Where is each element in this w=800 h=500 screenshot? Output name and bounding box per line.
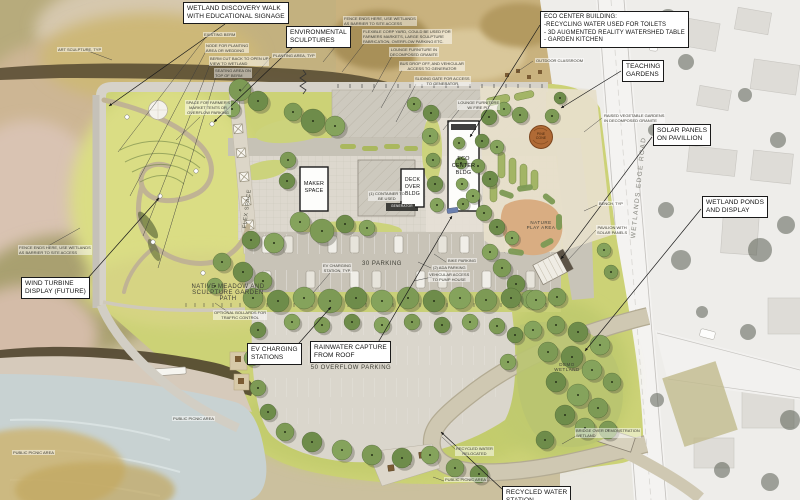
note-fence-ends-top: FENCE ENDS HERE, USE WETLANDS AS BARRIER… [343,16,417,26]
note-bridge-demo: BRIDGE OVER DEMONSTRATION WETLAND [575,428,641,438]
note-ada-parking: (2) ADA PARKING [432,265,467,270]
note-bike-parking: BIKE PARKING [447,258,477,263]
note-art-sculpture: ART SCULPTURE, TYP [57,47,102,52]
note-vehicular-access: VEHICULAR ACCESS TO PUMP HOUSE [428,272,470,282]
callout-solar-panels: SOLAR PANELS ON PAVILLION [653,124,711,146]
eco-center-bldg-label: ECO CENTER BLDG [448,156,479,177]
note-existing-berm: EXISTING BERM [203,32,236,37]
callout-wetland-ponds: WETLAND PONDS AND DISPLAY [702,196,768,218]
callout-teaching-gardens: TEACHING GARDENS [622,60,664,82]
demo-wetland-label: DEMO WETLAND [548,362,586,372]
note-ev-station-typ: EV CHARGING STATION, TYP [322,263,352,273]
note-seating-berm: SEATING AREA ON TOP OF BERM [214,68,252,78]
deck-over-bldg-label: DECK OVER BLDG [401,177,424,197]
eco-roof-bar [451,124,476,130]
pine-cone-label: PINE CONE [530,132,552,141]
note-bench-typ: BENCH, TYP [598,201,624,206]
note-generator: GENERATOR [389,204,415,208]
callout-wind-turbine: WIND TURBINE DISPLAY (FUTURE) [21,277,90,299]
note-pavilion-solar: PAVILION WITH SOLAR PANELS [596,225,628,235]
nature-play-label: NATURE PLAY AREA [520,220,562,230]
overflow-parking-label: 50 OVERFLOW PARKING [308,365,394,371]
site-plan-canvas [0,0,800,500]
note-flexible-corp-yard: FLEXIBLE CORP YARD, COULD BE USED FOR FA… [362,29,452,44]
callout-ev-charging: EV CHARGING STATIONS [247,343,302,365]
callout-eco-center-building: ECO CENTER BUILDING: -RECYCLING WATER US… [540,11,689,48]
callout-environmental-sculptures: ENVIRONMENTAL SCULPTURES [286,26,351,48]
note-public-picnic-3: PUBLIC PICNIC AREA [12,450,55,455]
note-optional-bollards: OPTIONAL BOLLARDS FOR TRAFFIC CONTROL [213,310,267,320]
callout-wetland-discovery-walk: WETLAND DISCOVERY WALK WITH EDUCATIONAL … [183,2,289,24]
note-lounge-granite: LOUNGE FURNITURE IN DECOMPOSED GRANITE [389,47,439,57]
note-recycled-relocated: RECYCLED WATER RELOCATED [455,446,494,456]
note-bus-drop: BUS DROP OFF, AND VEHICULAR ACCESS TO GE… [399,61,465,71]
note-public-picnic-2: PUBLIC PICNIC AREA [444,477,487,482]
note-fence-ends-left: FENCE ENDS HERE, USE WETLANDS AS BARRIER… [18,245,92,255]
note-planting-area: PLANTING AREA, TYP [272,53,316,58]
note-space-farmers: SPACE FOR FARMER'S MARKET TENTS OR OVERF… [185,100,231,115]
note-raised-veg: RAISED VEGETABLE GARDENS IN DECOMPOSED G… [603,113,665,123]
shoreline-water [0,356,266,500]
maker-space-label: MAKER SPACE [300,181,328,195]
note-berm-cut: BERM CUT BACK TO OPEN UP VIEW TO WETLAND [209,56,269,66]
callout-recycled-water: RECYCLED WATER STATION [502,486,571,500]
note-node-planting: NODE FOR PLANTING AREA OR WEDDING [205,43,249,53]
native-meadow-label: NATIVE MEADOW AND SCULPTURE GARDEN PATH [188,284,268,302]
callout-rainwater-capture: RAINWATER CAPTURE FROM ROOF [310,341,391,363]
parking-30-label: 30 PARKING [352,261,412,267]
note-public-picnic-1: PUBLIC PICNIC AREA [172,416,215,421]
site-plan: WETLAND DISCOVERY WALK WITH EDUCATIONAL … [0,0,800,500]
note-lounge-fire: LOUNGE FURNITURE W/ FIRE PIT [457,100,500,110]
note-sliding-gate: SLIDING GATE FOR ACCESS TO GENERATOR [414,76,471,86]
note-outdoor-classroom: OUTDOOR CLASSROOM [535,58,584,63]
